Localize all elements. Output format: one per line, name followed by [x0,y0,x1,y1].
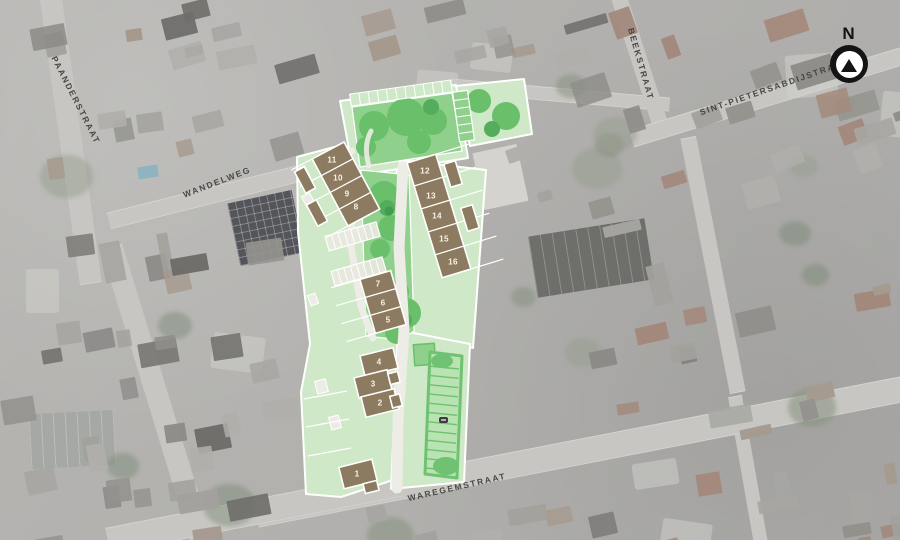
lot-number-15: 15 [439,235,449,244]
lot-number-12: 12 [420,167,430,176]
lot-number-16: 16 [448,258,458,267]
compass-north-label: N [828,25,870,42]
lot-number-8: 8 [354,203,359,212]
site-plan-map: 12345678910111213141516 PAANDERSTRAATWAN… [0,0,900,540]
lot-number-9: 9 [345,190,350,199]
lot-number-11: 11 [327,156,336,165]
lot-number-6: 6 [381,299,386,308]
compass: N [828,25,870,83]
north-arrow-icon [830,45,868,83]
lot-number-4: 4 [377,358,382,367]
parking-strip-waregemstraat [425,352,462,478]
lot-number-13: 13 [426,192,436,201]
lot-number-5: 5 [386,316,391,325]
lot-number-3: 3 [371,380,376,389]
annex [388,371,400,384]
lot-number-14: 14 [432,212,442,221]
development-site-plan-overlay: 12345678910111213141516 [0,0,900,540]
lot-number-1: 1 [355,470,360,479]
lot-number-7: 7 [376,280,381,289]
annex [390,394,403,408]
lot-number-10: 10 [333,174,343,183]
lot-number-2: 2 [378,399,383,408]
